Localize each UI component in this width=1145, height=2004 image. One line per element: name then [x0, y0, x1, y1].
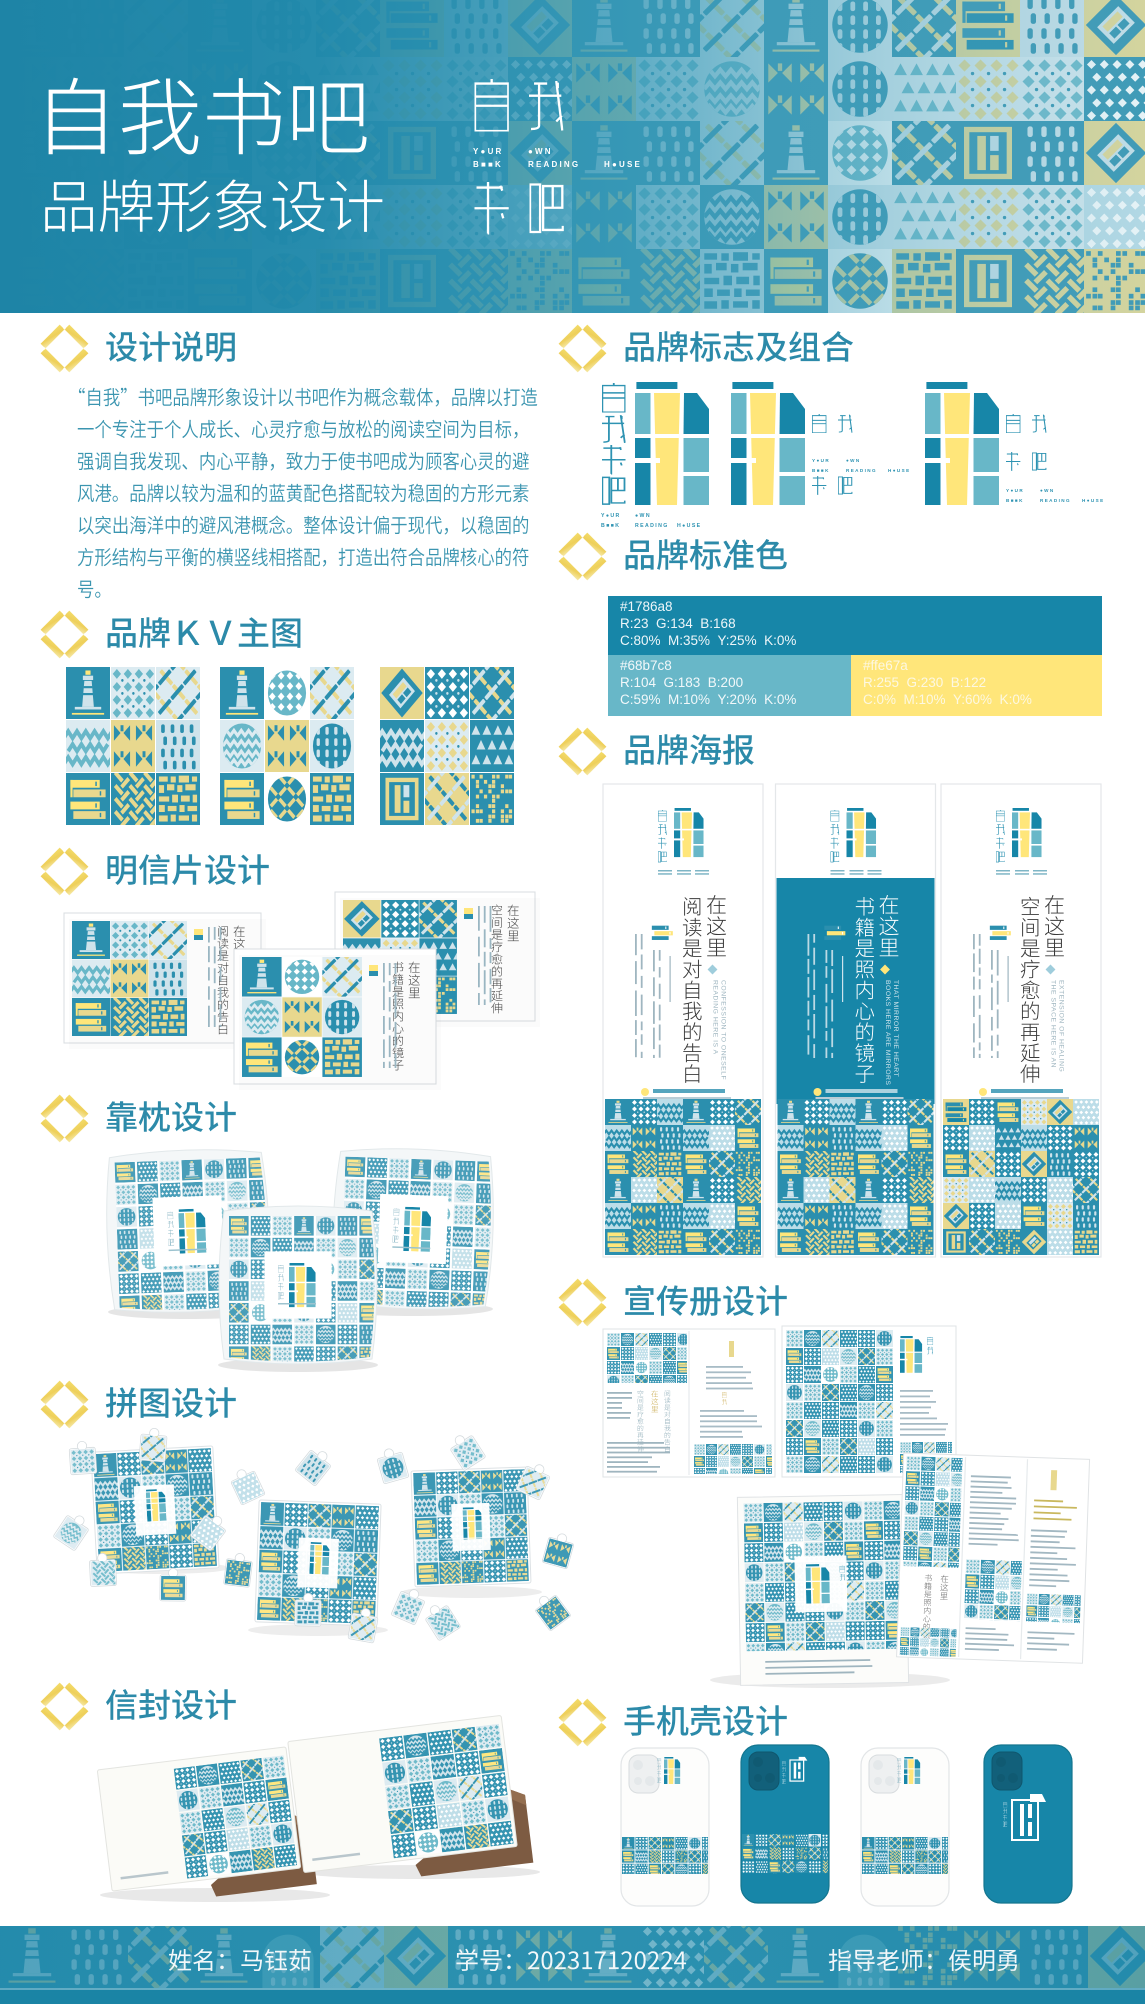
svg-text:THE SPACE HERE IS AN: THE SPACE HERE IS AN	[1050, 980, 1057, 1068]
svg-text:C:0% M:10% Y:60% K:0%: C:0% M:10% Y:60% K:0%	[863, 692, 1032, 707]
svg-text:●WN: ●WN	[528, 147, 553, 156]
svg-text:C:59% M:10% Y:20% K:0%: C:59% M:10% Y:20% K:0%	[620, 692, 796, 707]
svg-text:READING: READING	[846, 468, 877, 473]
svg-text:READING HERE IS A: READING HERE IS A	[712, 980, 719, 1055]
svg-text:#68b7c8: #68b7c8	[620, 658, 672, 673]
svg-text:●WN: ●WN	[635, 513, 651, 519]
svg-text:●WN: ●WN	[1040, 488, 1055, 493]
svg-text:Y●UR: Y●UR	[812, 458, 830, 463]
svg-text:●WN: ●WN	[846, 458, 861, 463]
svg-text:#1786a8: #1786a8	[620, 599, 673, 614]
svg-text:READING: READING	[635, 523, 669, 529]
svg-text:B■■K: B■■K	[601, 523, 620, 529]
svg-text:R:255 G:230 B:122: R:255 G:230 B:122	[863, 675, 986, 690]
svg-text:READING: READING	[1040, 498, 1071, 503]
svg-text:#ffe67a: #ffe67a	[863, 658, 908, 673]
svg-text:EXTENSION OF HEALING: EXTENSION OF HEALING	[1058, 980, 1065, 1072]
svg-text:H●USE: H●USE	[888, 468, 911, 473]
svg-text:Y●UR: Y●UR	[1006, 488, 1024, 493]
svg-text:Y●UR: Y●UR	[473, 147, 504, 156]
svg-text:THAT MIRROR THE HEART: THAT MIRROR THE HEART	[892, 980, 899, 1077]
svg-text:READING: READING	[528, 160, 580, 169]
svg-text:H●USE: H●USE	[604, 160, 642, 169]
svg-text:C:80% M:35% Y:25% K:0%: C:80% M:35% Y:25% K:0%	[620, 633, 796, 648]
svg-text:Y●UR: Y●UR	[601, 513, 621, 519]
svg-text:B■■K: B■■K	[473, 160, 503, 169]
svg-text:B■■K: B■■K	[1006, 498, 1024, 503]
svg-text:BOOKS HERE ARE MIRRORS: BOOKS HERE ARE MIRRORS	[884, 980, 891, 1085]
svg-text:H●USE: H●USE	[1082, 498, 1105, 503]
svg-text:H●USE: H●USE	[677, 523, 702, 529]
svg-text:R:23 G:134 B:168: R:23 G:134 B:168	[620, 616, 736, 631]
svg-text:CONFESSION TO ONESELF: CONFESSION TO ONESELF	[720, 980, 727, 1080]
svg-text:B■■K: B■■K	[812, 468, 830, 473]
svg-text:R:104 G:183 B:200: R:104 G:183 B:200	[620, 675, 743, 690]
